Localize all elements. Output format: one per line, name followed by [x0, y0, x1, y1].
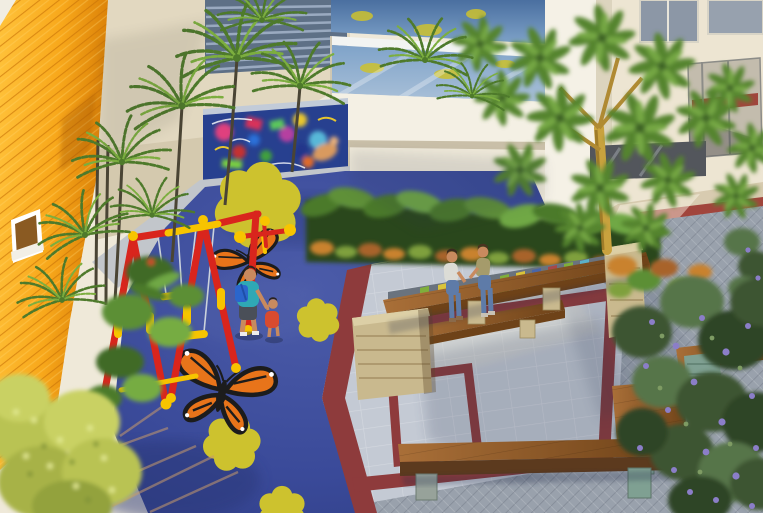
scene-canvas [0, 0, 763, 513]
courtyard-rendering [0, 0, 763, 513]
